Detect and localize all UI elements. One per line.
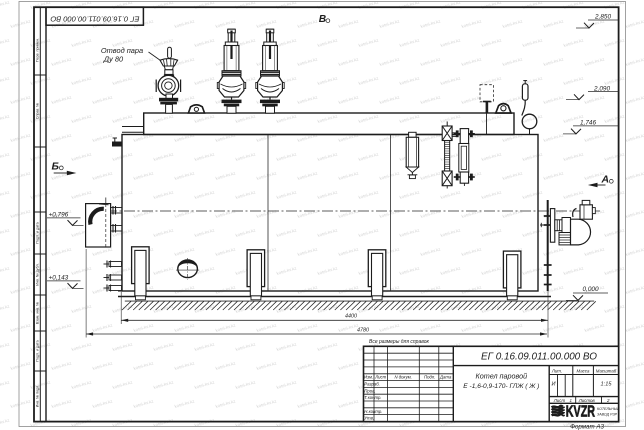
svg-text:Е -1,6-0,9-170- ГЛЖ ( Ж ): Е -1,6-0,9-170- ГЛЖ ( Ж )	[463, 383, 539, 390]
svg-text:0,000: 0,000	[583, 286, 599, 293]
svg-text:Листов: Листов	[578, 398, 596, 403]
svg-text:Лист: Лист	[553, 398, 566, 403]
svg-text:Подп.: Подп.	[424, 375, 435, 380]
svg-text:Формат А3: Формат А3	[570, 424, 604, 430]
svg-text:Н.контр.: Н.контр.	[364, 409, 382, 414]
svg-text:Взам. инв. №: Взам. инв. №	[36, 302, 40, 324]
svg-text:ЕГ 0.16.09.011.00.000 ВО: ЕГ 0.16.09.011.00.000 ВО	[481, 351, 597, 362]
svg-text:Справ. №: Справ. №	[36, 103, 40, 119]
svg-text:1:15: 1:15	[601, 382, 613, 388]
svg-text:Дата: Дата	[439, 375, 452, 380]
svg-text:Перв. примен.: Перв. примен.	[36, 38, 40, 62]
svg-text:Лист: Лист	[374, 375, 386, 380]
svg-text:В: В	[319, 14, 326, 25]
svg-text:Т.контр.: Т.контр.	[364, 395, 381, 400]
svg-text:Лит.: Лит.	[551, 368, 562, 373]
svg-text:Масса: Масса	[577, 368, 591, 373]
svg-text:2: 2	[606, 398, 610, 403]
svg-text:Пров.: Пров.	[364, 388, 375, 393]
svg-text:Подп. и дата: Подп. и дата	[36, 340, 40, 361]
svg-text:ЕГ 0.16.09.011.00.000 ВО: ЕГ 0.16.09.011.00.000 ВО	[50, 14, 139, 23]
svg-text:Все размеры для справок: Все размеры для справок	[369, 339, 430, 345]
svg-text:Котел паровой: Котел паровой	[476, 372, 528, 381]
svg-text:Инв. № подл.: Инв. № подл.	[36, 385, 40, 407]
svg-text:Изм.: Изм.	[364, 375, 373, 380]
svg-text:N докум.: N докум.	[395, 375, 412, 380]
svg-text:KVZR: KVZR	[566, 403, 595, 420]
svg-text:ЗАВОД РЗР: ЗАВОД РЗР	[597, 412, 618, 416]
svg-text:Подп. и дата: Подп. и дата	[36, 222, 40, 243]
svg-text:А: А	[601, 174, 610, 186]
svg-text:Ду 80: Ду 80	[103, 55, 124, 64]
svg-text:И: И	[551, 382, 555, 388]
svg-text:1,746: 1,746	[580, 120, 596, 127]
svg-text:Масштаб: Масштаб	[596, 368, 617, 373]
svg-text:КОТЕЛЬНЫЙ: КОТЕЛЬНЫЙ	[597, 407, 620, 411]
svg-text:Б: Б	[52, 160, 60, 172]
svg-text:4400: 4400	[345, 314, 357, 320]
svg-text:Утв.: Утв.	[364, 416, 374, 421]
svg-text:Разраб.: Разраб.	[364, 382, 380, 387]
svg-text:4780: 4780	[357, 327, 369, 333]
svg-text:Инв. № дубл.: Инв. № дубл.	[36, 263, 40, 285]
